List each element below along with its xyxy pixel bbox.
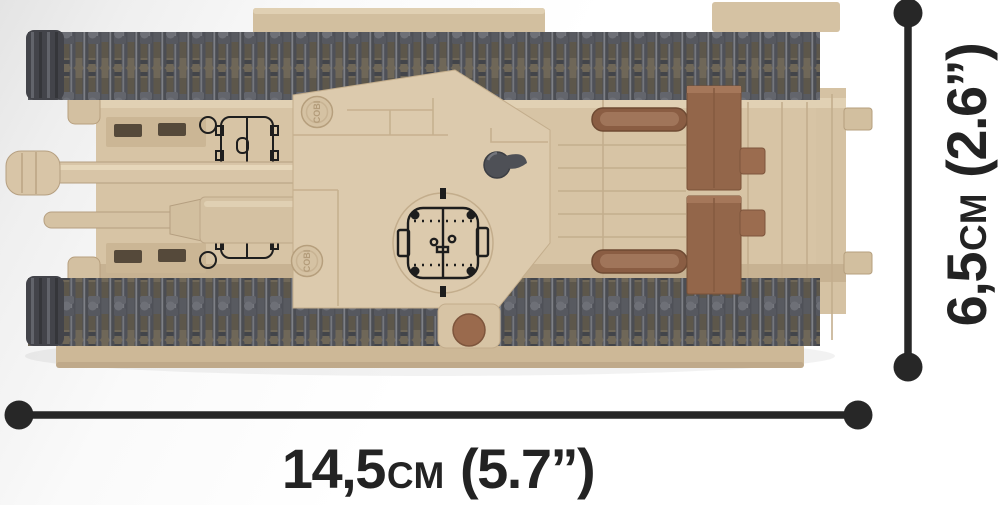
- product-dimension-figure: COBI COBI: [0, 0, 1000, 505]
- width-imperial-value: (5.7”): [460, 437, 594, 500]
- cobi-stud-bottom: COBI: [292, 246, 323, 277]
- height-dimension-label: 6,5cm(2.6”): [937, 0, 997, 385]
- secondary-gun-barrel: [44, 197, 312, 243]
- height-metric-value: 6,5: [935, 253, 998, 326]
- stowage-tab-top: [740, 148, 765, 174]
- width-metric-unit: cm: [387, 455, 444, 496]
- stowage-tab-bottom: [740, 210, 765, 236]
- tank-top-view-illustration: COBI COBI: [0, 0, 1000, 505]
- stud-brand-text: COBI: [302, 250, 312, 273]
- height-dimension-line: [894, 0, 923, 382]
- right-side-tab-top: [844, 108, 872, 130]
- height-metric-unit: cm: [953, 194, 994, 251]
- rear-round-plate: [453, 314, 485, 346]
- width-metric-value: 14,5: [282, 437, 385, 500]
- right-side-tab-bottom: [844, 252, 872, 274]
- width-dimension-line: [5, 401, 873, 430]
- height-imperial-value: (2.6”): [935, 44, 998, 178]
- stud-brand-text: COBI: [312, 101, 322, 124]
- muzzle-brake: [6, 151, 60, 195]
- cobi-stud-top: COBI: [302, 97, 333, 128]
- width-dimension-label: 14,5cm(5.7”): [88, 436, 788, 501]
